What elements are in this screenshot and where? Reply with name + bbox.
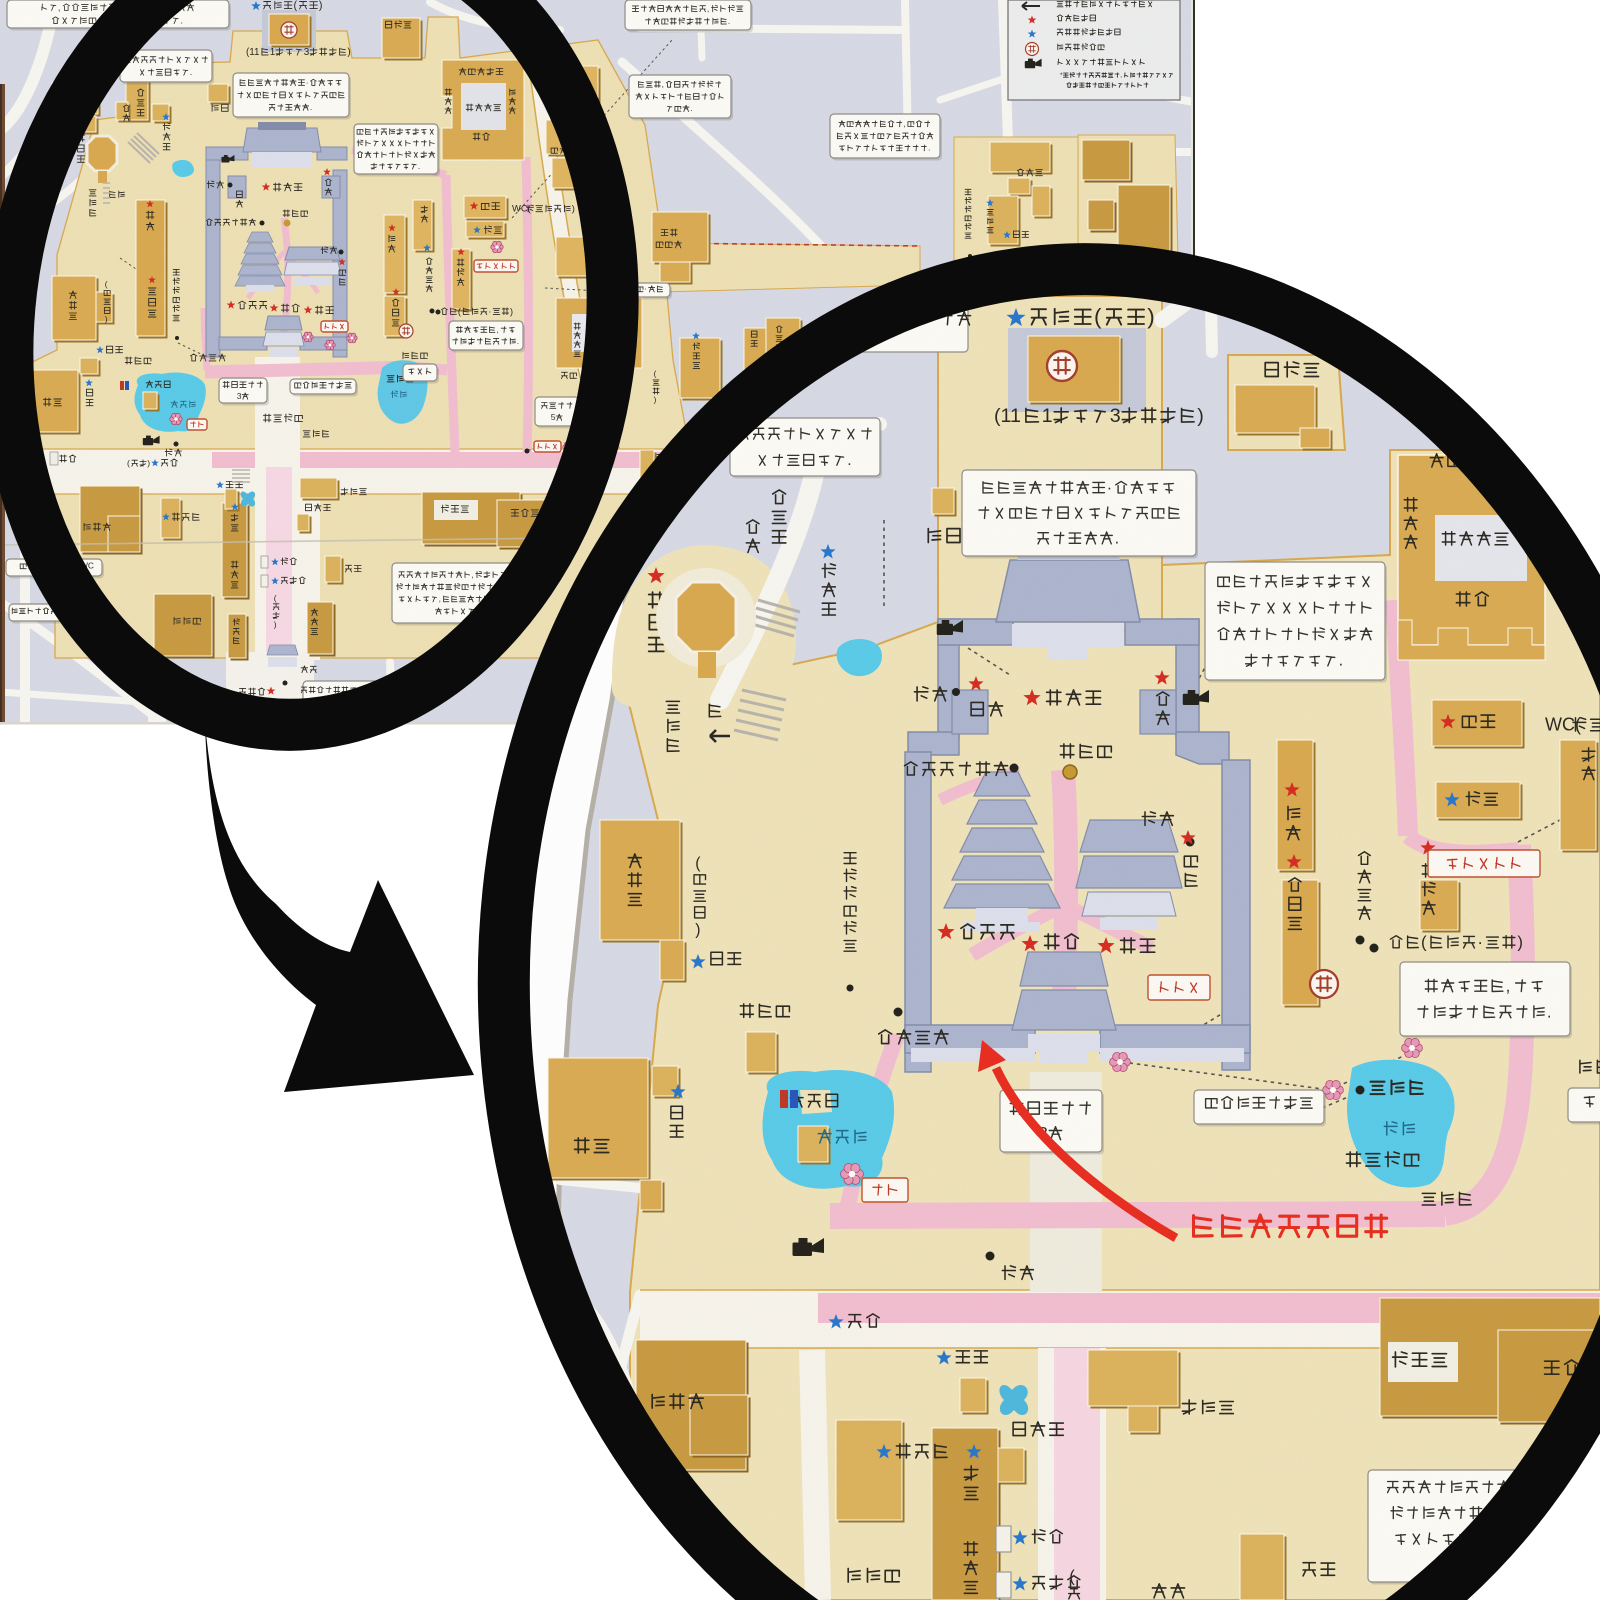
svg-text:.: . [690, 103, 692, 113]
svg-text:,: , [1506, 976, 1511, 995]
svg-text:): ) [695, 922, 700, 939]
svg-text:(: ( [1094, 304, 1102, 329]
svg-text:.: . [1115, 529, 1120, 547]
svg-text:(11: (11 [994, 405, 1021, 427]
svg-text:.: . [517, 336, 519, 346]
svg-text:): ) [347, 47, 350, 58]
svg-text:.: . [190, 67, 192, 77]
svg-text:): ) [1517, 933, 1523, 952]
svg-text:,: , [496, 324, 498, 334]
svg-text:,: , [903, 119, 905, 129]
svg-text:.: . [1547, 1002, 1552, 1021]
svg-text:(: ( [1421, 933, 1427, 952]
svg-text:1: 1 [1042, 405, 1053, 427]
svg-text:): ) [510, 306, 513, 316]
svg-text:.: . [847, 452, 851, 469]
svg-text:): ) [147, 458, 150, 468]
svg-text:): ) [274, 619, 277, 629]
svg-text:.: . [728, 16, 730, 26]
svg-text:,: , [1120, 72, 1122, 79]
svg-text:(: ( [695, 855, 701, 872]
svg-text:WC(: WC( [512, 203, 532, 214]
svg-text:(11: (11 [246, 47, 260, 58]
svg-text:(: ( [274, 593, 277, 603]
svg-text:·: · [306, 77, 309, 87]
svg-text:): ) [319, 0, 323, 12]
svg-text:.: . [180, 15, 183, 26]
svg-text:1: 1 [270, 47, 276, 58]
svg-text:(: ( [1069, 1568, 1075, 1586]
svg-text:3: 3 [1110, 405, 1121, 427]
svg-text:): ) [654, 395, 657, 404]
svg-text:): ) [1197, 405, 1204, 427]
svg-text:,: , [707, 3, 709, 13]
svg-text:·: · [488, 306, 491, 316]
svg-text:.: . [928, 143, 930, 153]
svg-text:(: ( [294, 0, 298, 12]
svg-text:.: . [1339, 652, 1344, 670]
svg-text:3: 3 [304, 47, 310, 58]
svg-text:·: · [644, 284, 647, 294]
svg-text:,: , [662, 79, 664, 89]
svg-text:,: , [439, 594, 441, 604]
svg-text:(: ( [458, 306, 461, 316]
svg-text:,: , [58, 1, 61, 12]
svg-text:·: · [1107, 479, 1112, 497]
svg-text:): ) [105, 314, 108, 324]
svg-text:3: 3 [237, 391, 242, 401]
svg-text:): ) [572, 203, 575, 214]
svg-text:.: . [310, 102, 312, 112]
svg-text:(: ( [127, 458, 130, 468]
svg-text:·: · [1477, 933, 1483, 952]
svg-text:(: ( [654, 370, 657, 379]
svg-text:): ) [1147, 304, 1154, 329]
svg-text:(: ( [105, 279, 108, 289]
svg-text:,: , [471, 569, 473, 579]
svg-text:.: . [418, 162, 420, 171]
svg-text:5: 5 [551, 412, 556, 422]
